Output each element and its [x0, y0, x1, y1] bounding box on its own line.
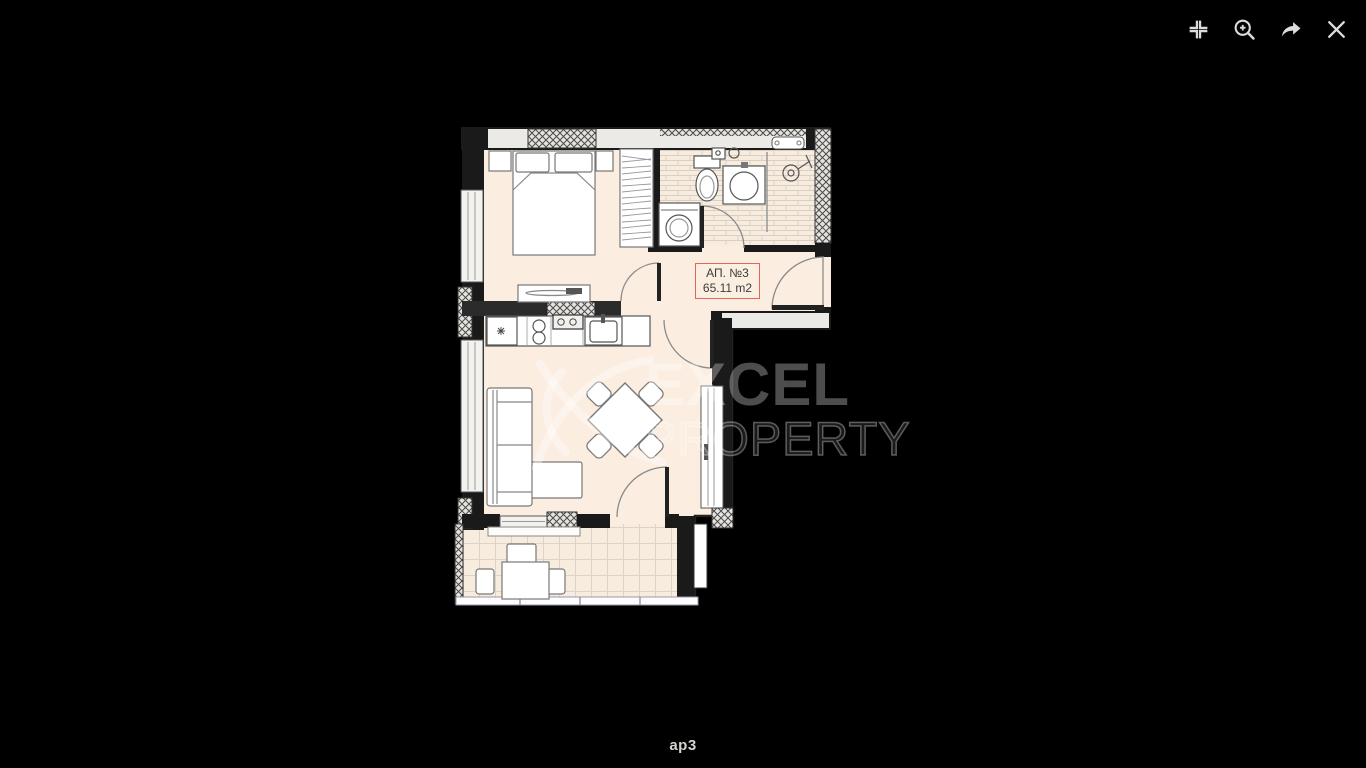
collapse-button[interactable]	[1185, 16, 1212, 43]
share-button[interactable]	[1277, 16, 1304, 43]
floorplan-image[interactable]	[453, 126, 833, 610]
share-icon	[1278, 17, 1303, 42]
image-caption: ap3	[0, 737, 1366, 754]
unit-label-box: АП. №3 65.11 m2	[695, 263, 760, 299]
collapse-icon	[1186, 17, 1211, 42]
floorplan-svg	[453, 126, 833, 610]
close-button[interactable]	[1323, 16, 1350, 43]
lightbox-stage: АП. №3 65.11 m2 EXCEL PROPERTY ap3	[0, 0, 1366, 768]
unit-area: 65.11 m2	[703, 281, 752, 296]
zoom-in-button[interactable]	[1231, 16, 1258, 43]
unit-number: АП. №3	[706, 266, 749, 281]
zoom-in-icon	[1232, 17, 1257, 42]
viewer-toolbar	[1185, 16, 1350, 43]
close-icon	[1324, 17, 1349, 42]
